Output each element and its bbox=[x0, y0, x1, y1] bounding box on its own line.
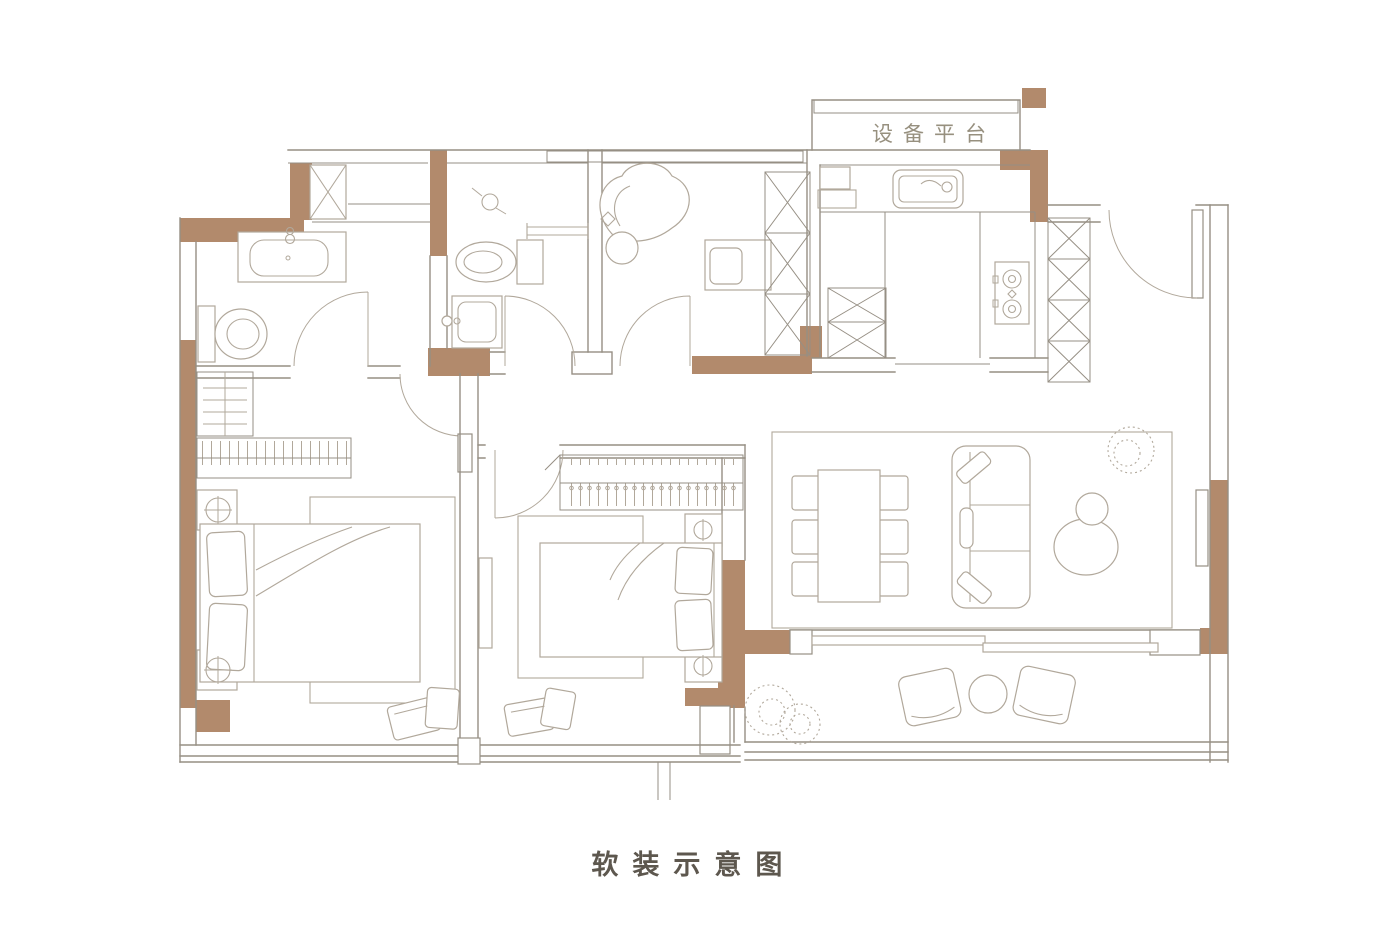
shower-head-icon bbox=[482, 194, 498, 210]
desk-chair-icon bbox=[710, 248, 742, 284]
round-table-icon bbox=[969, 675, 1007, 713]
sofa-icon bbox=[952, 446, 1030, 608]
toilet-tank bbox=[198, 306, 215, 362]
towel-bar-icon bbox=[527, 223, 588, 239]
dining-set-icon bbox=[792, 470, 908, 602]
bathroom-2 bbox=[442, 188, 588, 348]
study bbox=[600, 163, 810, 355]
armchair-icon bbox=[897, 667, 962, 728]
sliding-window-panel bbox=[983, 643, 1158, 652]
window-band bbox=[547, 151, 803, 162]
base-cabinet-icon bbox=[828, 288, 886, 358]
entry bbox=[1048, 218, 1090, 382]
sliding-door-panel bbox=[1196, 490, 1208, 566]
floor-plan-drawing bbox=[0, 0, 1400, 926]
caption: 软装示意图 bbox=[591, 843, 796, 882]
equipment-platform-label: 设备平台 bbox=[872, 118, 996, 148]
dining-table-icon bbox=[818, 470, 880, 602]
pillow bbox=[675, 547, 713, 595]
pillow bbox=[675, 599, 714, 651]
bed-icon bbox=[540, 543, 722, 657]
toilet-tank bbox=[517, 240, 543, 284]
bathroom-1 bbox=[198, 228, 346, 363]
living-dining bbox=[772, 427, 1172, 628]
sliding-window-panel bbox=[812, 636, 985, 645]
floor-plan-page: 设备平台 软装示意图 bbox=[0, 0, 1400, 926]
bed-icon bbox=[200, 524, 420, 682]
bedroom-1 bbox=[197, 372, 469, 745]
chair-icon bbox=[502, 683, 582, 741]
ac-unit bbox=[479, 558, 492, 648]
entry-door-leaf bbox=[1192, 210, 1203, 298]
side-table-icon bbox=[1076, 493, 1108, 525]
laundry-nook bbox=[310, 165, 346, 219]
vent-band bbox=[814, 100, 1018, 113]
plant-icon bbox=[1108, 427, 1154, 473]
plant-icon bbox=[745, 685, 820, 744]
ottoman-icon bbox=[606, 232, 638, 264]
coffee-table-icon bbox=[1054, 519, 1118, 575]
toilet-icon bbox=[456, 242, 516, 282]
cooktop-icon bbox=[995, 262, 1029, 324]
small-appliance bbox=[820, 167, 850, 189]
pillow bbox=[206, 531, 247, 597]
lounge-chair-icon bbox=[600, 163, 689, 241]
kitchen bbox=[818, 167, 1035, 358]
pillow bbox=[206, 603, 247, 671]
armchair-icon bbox=[1012, 665, 1077, 726]
lounge-chair-icon bbox=[384, 680, 469, 745]
balcony bbox=[745, 665, 1077, 744]
